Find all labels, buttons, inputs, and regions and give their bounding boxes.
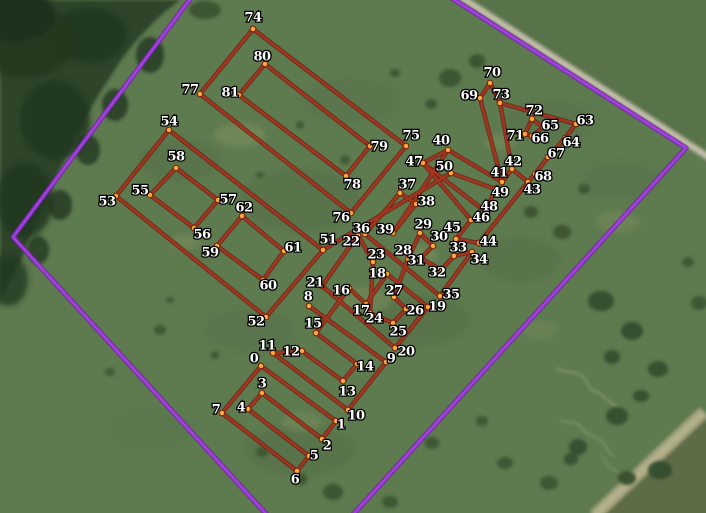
waypoint-label-49: 49 xyxy=(491,186,509,201)
waypoint-label-31: 31 xyxy=(407,254,424,269)
waypoint-dot-13[interactable] xyxy=(340,378,346,384)
waypoint-label-75: 75 xyxy=(402,129,420,144)
waypoint-label-52: 52 xyxy=(247,315,264,330)
waypoint-label-15: 15 xyxy=(304,317,322,332)
waypoint-label-47: 47 xyxy=(405,155,422,170)
waypoint-label-20: 20 xyxy=(397,345,415,360)
waypoint-label-26: 26 xyxy=(406,304,424,319)
waypoint-label-11: 11 xyxy=(258,339,275,354)
waypoint-label-23: 23 xyxy=(367,248,385,263)
waypoint-label-0: 0 xyxy=(250,352,259,367)
waypoint-label-13: 13 xyxy=(338,385,356,400)
waypoint-label-62: 62 xyxy=(235,201,252,216)
waypoint-label-33: 33 xyxy=(449,241,467,256)
waypoint-label-9: 9 xyxy=(387,352,396,367)
waypoint-label-3: 3 xyxy=(258,377,267,392)
waypoint-label-5: 5 xyxy=(310,449,319,464)
waypoint-label-8: 8 xyxy=(304,290,313,305)
waypoint-dot-58[interactable] xyxy=(173,165,179,171)
waypoint-label-56: 56 xyxy=(193,228,211,243)
waypoint-label-39: 39 xyxy=(376,223,394,238)
waypoint-label-42: 42 xyxy=(504,155,521,170)
waypoint-label-73: 73 xyxy=(492,88,510,103)
waypoint-label-77: 77 xyxy=(181,83,198,98)
waypoint-label-70: 70 xyxy=(483,66,501,81)
waypoint-label-59: 59 xyxy=(201,246,219,261)
waypoint-label-32: 32 xyxy=(428,266,445,281)
waypoint-label-37: 37 xyxy=(398,178,415,193)
waypoint-label-55: 55 xyxy=(131,184,149,199)
waypoint-dot-69[interactable] xyxy=(477,95,483,101)
waypoint-label-57: 57 xyxy=(219,193,236,208)
waypoint-label-6: 6 xyxy=(291,473,300,488)
waypoint-label-68: 68 xyxy=(534,170,552,185)
waypoint-label-80: 80 xyxy=(253,50,271,65)
waypoint-label-22: 22 xyxy=(342,235,359,250)
waypoint-label-16: 16 xyxy=(332,284,350,299)
field-map: 0123456789101112131415161718192021222324… xyxy=(0,0,706,513)
waypoint-label-63: 63 xyxy=(576,114,594,129)
waypoint-dot-70[interactable] xyxy=(487,80,493,86)
waypoint-label-25: 25 xyxy=(389,325,407,340)
waypoint-label-50: 50 xyxy=(435,160,453,175)
waypoint-label-10: 10 xyxy=(347,409,365,424)
waypoint-label-72: 72 xyxy=(525,104,542,119)
waypoint-label-61: 61 xyxy=(284,241,301,256)
waypoint-label-27: 27 xyxy=(385,284,402,299)
waypoint-label-14: 14 xyxy=(356,360,374,375)
waypoint-label-71: 71 xyxy=(506,129,523,144)
waypoint-label-74: 74 xyxy=(244,11,262,26)
waypoint-label-34: 34 xyxy=(470,253,488,268)
waypoint-label-18: 18 xyxy=(368,267,386,282)
waypoint-label-76: 76 xyxy=(332,211,350,226)
waypoint-label-29: 29 xyxy=(414,218,432,233)
waypoint-label-38: 38 xyxy=(417,195,435,210)
waypoint-label-40: 40 xyxy=(432,134,450,149)
waypoint-label-51: 51 xyxy=(319,233,336,248)
waypoint-label-54: 54 xyxy=(160,115,178,130)
waypoint-label-53: 53 xyxy=(98,195,116,210)
waypoint-label-81: 81 xyxy=(221,86,238,101)
waypoint-label-67: 67 xyxy=(547,147,564,162)
waypoint-label-69: 69 xyxy=(460,89,478,104)
waypoint-label-21: 21 xyxy=(306,276,323,291)
waypoint-label-45: 45 xyxy=(443,221,461,236)
waypoint-label-4: 4 xyxy=(237,401,246,416)
waypoint-label-2: 2 xyxy=(323,439,332,454)
waypoint-label-43: 43 xyxy=(523,183,541,198)
waypoint-label-64: 64 xyxy=(562,136,580,151)
waypoint-dot-75[interactable] xyxy=(403,143,409,149)
waypoint-dot-74[interactable] xyxy=(250,26,256,32)
waypoint-dot-4[interactable] xyxy=(245,406,251,412)
waypoint-dot-51[interactable] xyxy=(320,247,326,253)
satellite-map-view: 0123456789101112131415161718192021222324… xyxy=(0,0,706,513)
waypoint-label-24: 24 xyxy=(365,312,383,327)
waypoint-label-44: 44 xyxy=(479,235,497,250)
waypoint-label-12: 12 xyxy=(282,345,299,360)
waypoint-label-60: 60 xyxy=(259,279,277,294)
waypoint-label-48: 48 xyxy=(480,200,498,215)
waypoint-label-36: 36 xyxy=(352,222,370,237)
waypoint-dot-0[interactable] xyxy=(258,363,264,369)
waypoint-label-1: 1 xyxy=(337,418,346,433)
waypoint-label-7: 7 xyxy=(212,403,221,418)
waypoint-label-35: 35 xyxy=(442,288,460,303)
waypoint-dot-12[interactable] xyxy=(299,348,305,354)
waypoint-label-79: 79 xyxy=(370,140,388,155)
waypoint-label-58: 58 xyxy=(167,150,185,165)
waypoint-label-66: 66 xyxy=(531,132,549,147)
waypoint-label-78: 78 xyxy=(343,178,361,193)
